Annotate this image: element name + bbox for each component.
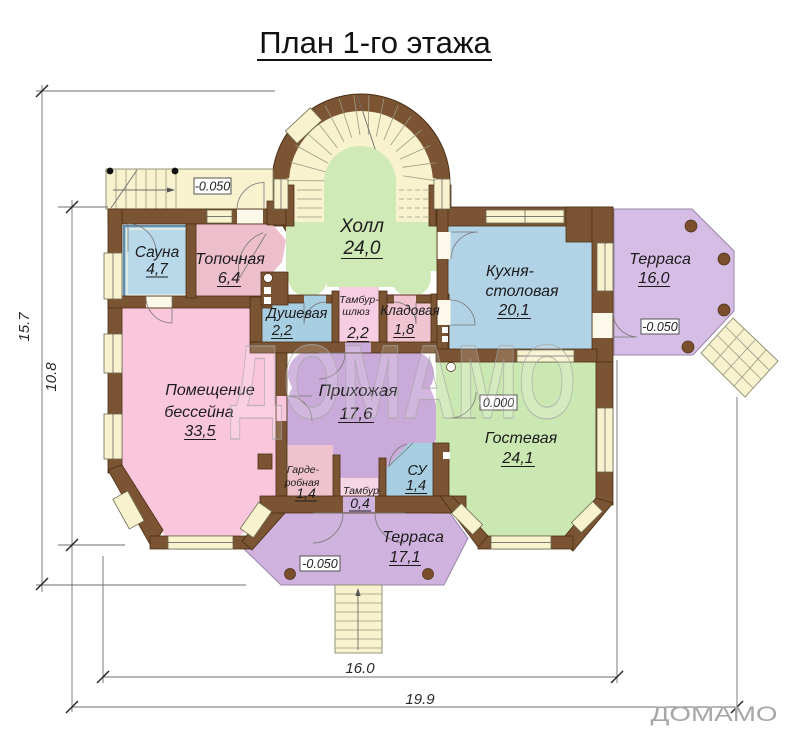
svg-text:10.8: 10.8 [43,362,60,392]
svg-text:-0.050: -0.050 [642,320,677,334]
svg-text:4,7: 4,7 [146,261,169,278]
svg-text:16.0: 16.0 [345,660,375,677]
svg-text:6,4: 6,4 [218,270,240,287]
svg-text:1,4: 1,4 [296,485,316,501]
svg-text:33,5: 33,5 [184,423,215,440]
svg-text:1,4: 1,4 [406,478,426,494]
svg-text:0,4: 0,4 [350,495,370,511]
svg-text:шлюз: шлюз [342,306,370,318]
svg-text:-0.050: -0.050 [195,180,230,194]
svg-text:24,0: 24,0 [343,238,381,259]
svg-text:16,0: 16,0 [638,270,669,287]
svg-text:15.7: 15.7 [16,312,33,342]
svg-text:бессейна: бессейна [164,404,233,421]
svg-text:Душевая: Душевая [265,306,328,322]
svg-text:СУ: СУ [408,463,429,479]
svg-text:План 1-го этажа: План 1-го этажа [259,25,491,60]
svg-text:Терраса: Терраса [629,251,691,268]
svg-text:ДОМАМО: ДОМАМО [230,324,576,441]
svg-text:столовая: столовая [485,283,559,300]
svg-text:Сауна: Сауна [135,244,180,261]
svg-text:Холл: Холл [339,216,384,237]
svg-text:Кухня-: Кухня- [486,263,534,280]
svg-text:17,1: 17,1 [389,549,420,566]
svg-text:19.9: 19.9 [405,691,435,708]
svg-text:24,1: 24,1 [501,450,533,467]
svg-text:Терраса: Терраса [382,529,444,546]
svg-text:Гарде-: Гарде- [287,464,320,476]
svg-text:20,1: 20,1 [497,302,529,319]
svg-text:-0.050: -0.050 [302,557,337,571]
svg-text:Кладовая: Кладовая [380,303,440,318]
svg-text:Тамбур-: Тамбур- [339,294,379,306]
svg-text:ДОМАМО: ДОМАМО [651,703,778,726]
svg-text:Топочная: Топочная [195,251,265,268]
